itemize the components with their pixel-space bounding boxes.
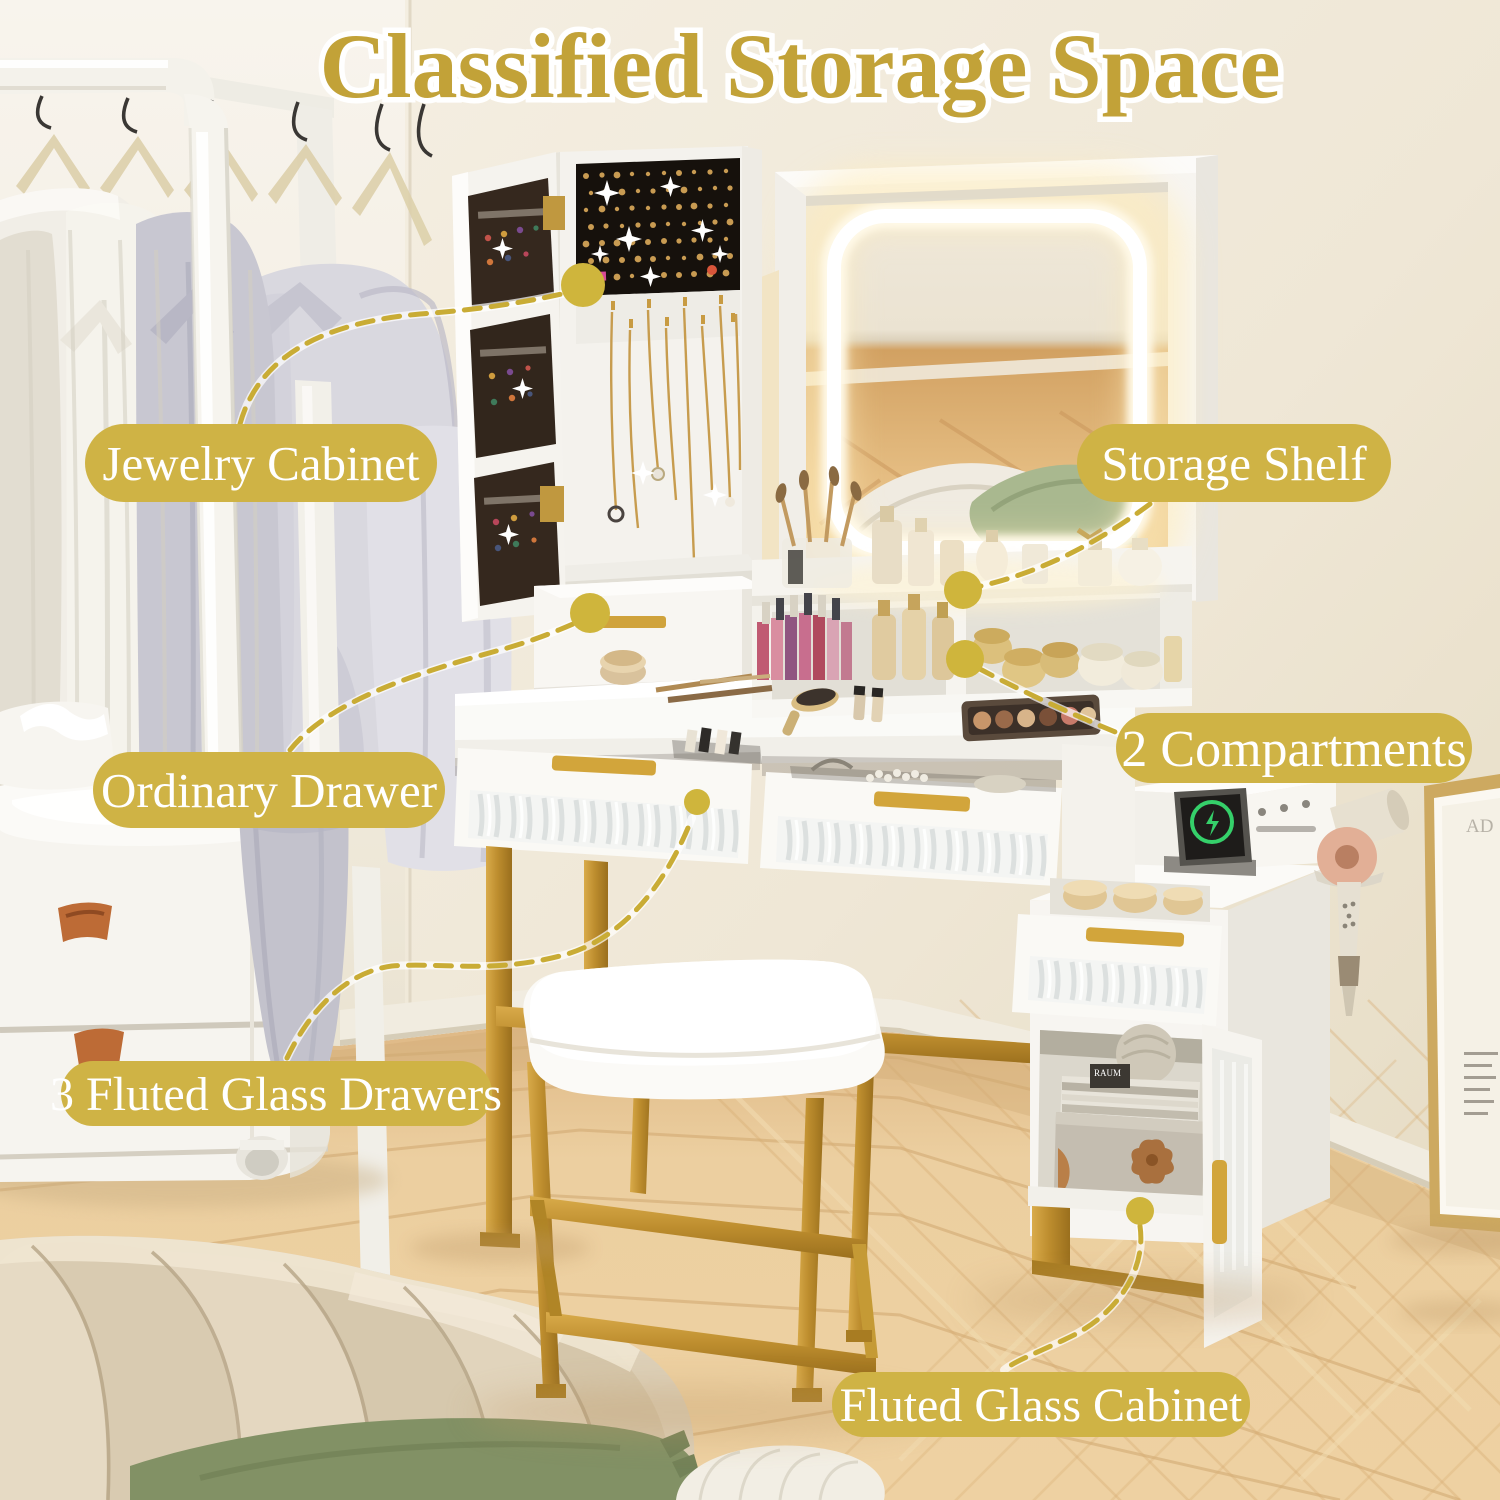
svg-text:Storage Shelf: Storage Shelf [1101,436,1367,491]
svg-text:RAUM: RAUM [1094,1068,1121,1078]
svg-text:Fluted Glass Cabinet: Fluted Glass Cabinet [840,1379,1243,1432]
svg-text:3 Fluted Glass Drawers: 3 Fluted Glass Drawers [50,1068,502,1121]
svg-text:AD: AD [1466,816,1493,837]
svg-text:2 Compartments: 2 Compartments [1121,721,1466,778]
svg-text:Ordinary Drawer: Ordinary Drawer [101,763,437,818]
svg-text:Classified Storage Space: Classified Storage Space [320,15,1281,117]
svg-text:Jewelry Cabinet: Jewelry Cabinet [102,436,419,491]
